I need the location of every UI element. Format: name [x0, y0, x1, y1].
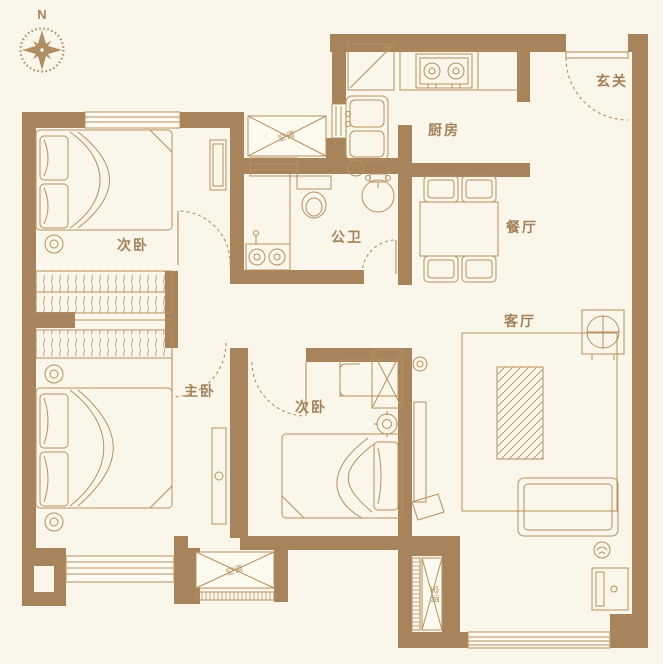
- dresser-master: [212, 428, 226, 524]
- room-label-bathroom: 公卫: [331, 229, 363, 245]
- window-living-bottom: [468, 632, 610, 648]
- coffee-table-icon: [497, 367, 543, 459]
- washer-icon: [246, 174, 290, 270]
- desk-icon: [340, 360, 398, 396]
- dining-table-icon: [420, 176, 498, 282]
- wall-panel: [412, 357, 444, 520]
- toilet-icon: [297, 176, 331, 218]
- room-label-living: 客厅: [503, 313, 536, 329]
- basin-icon: [362, 174, 394, 212]
- round-table-icon: [582, 310, 624, 360]
- bed-bedroom-top: [36, 130, 172, 230]
- window-bedroom-top: [85, 112, 180, 128]
- ceiling-lamp-icon: [374, 411, 400, 437]
- stove-icon: [416, 54, 472, 88]
- compass-north-label: N: [37, 7, 46, 22]
- dresser-bedroom-top: [210, 140, 226, 190]
- ac-platform-bottom: [196, 552, 274, 600]
- plant-icon: [594, 542, 610, 558]
- room-label-bedroom-top: 次卧: [117, 237, 149, 253]
- nightstand-icon: [45, 235, 63, 253]
- room-label-bedroom-middle: 次卧: [295, 399, 327, 415]
- floor-plan-page: N: [0, 0, 663, 664]
- tv-cabinet-icon: [592, 568, 628, 610]
- bedroom-top-door: [178, 211, 230, 265]
- bed-bedroom-middle: [282, 434, 402, 518]
- room-label-entry: 玄关: [596, 73, 628, 89]
- window-master-bay: [66, 556, 174, 582]
- sofa-icon: [518, 478, 618, 536]
- bed-master: [36, 388, 172, 508]
- room-label-dining: 餐厅: [505, 219, 538, 235]
- room-label-bedroom-master: 主卧: [184, 383, 216, 399]
- bathroom-door: [362, 240, 396, 274]
- compass-rose-icon: N: [21, 7, 64, 72]
- room-label-kitchen: 厨房: [428, 122, 460, 138]
- floor-plan-drawing: N: [0, 0, 663, 664]
- window-kitchen-side: [332, 104, 346, 138]
- ac-duct-label: 空调: [430, 585, 440, 602]
